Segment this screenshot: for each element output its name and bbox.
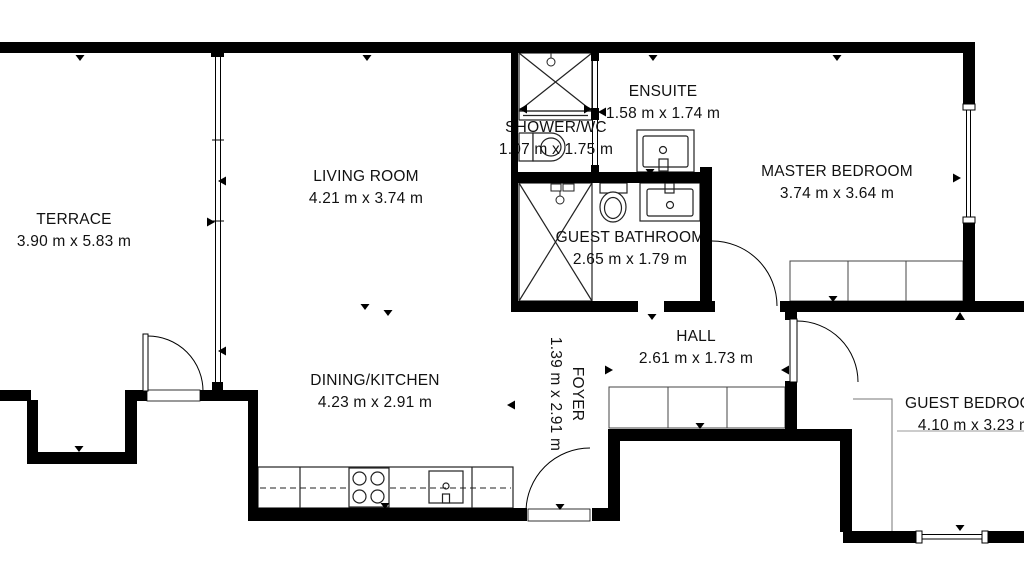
room-name: GUEST BATHROOM [556,227,705,249]
sink-symbol-guest [640,183,700,221]
room-label-dining-kitchen: DINING/KITCHEN 4.23 m x 2.91 m [310,370,439,414]
room-name: DINING/KITCHEN [310,370,439,392]
room-label-ensuite: ENSUITE 1.58 m x 1.74 m [606,81,720,125]
door-guest-bedroom [790,319,858,382]
room-label-terrace: TERRACE 3.90 m x 5.83 m [17,209,131,253]
room-name: MASTER BEDROOM [761,161,913,183]
room-dims: 4.10 m x 3.23 m [905,415,1024,437]
room-label-hall: HALL 2.61 m x 1.73 m [639,326,753,370]
walls-layer [0,0,1024,568]
room-dims: 1.58 m x 1.74 m [606,103,720,125]
hall-sideboard [609,387,785,428]
fixtures-layer [0,0,1024,568]
room-dims: 3.74 m x 3.64 m [761,183,913,205]
room-dims: 4.23 m x 2.91 m [310,392,439,414]
room-name: ENSUITE [606,81,720,103]
room-dims: 1.07 m x 1.75 m [499,139,613,161]
kitchen-counter [258,467,513,508]
room-name: SHOWER/WC [499,117,613,139]
shower-head-icon-guest [551,184,574,204]
room-label-shower-wc: SHOWER/WC 1.07 m x 1.75 m [499,117,613,161]
door-guest-bathroom [638,301,665,312]
room-label-living-room: LIVING ROOM 4.21 m x 3.74 m [309,166,423,210]
room-dims: 2.61 m x 1.73 m [639,348,753,370]
shower-head-icon [534,45,559,66]
door-master-bedroom [712,241,777,306]
room-name: LIVING ROOM [309,166,423,188]
room-dims: 3.90 m x 5.83 m [17,231,131,253]
room-dims: 1.39 m x 2.91 m [544,337,566,451]
door-terrace [143,334,203,401]
sink-symbol-ensuite [637,130,694,172]
room-dims: 4.21 m x 3.74 m [309,188,423,210]
room-name: HALL [639,326,753,348]
room-name: GUEST BEDROOM [905,393,1024,415]
room-label-foyer: FOYER 1.39 m x 2.91 m [544,337,588,451]
room-name: FOYER [566,337,588,451]
room-name: TERRACE [17,209,131,231]
sink-symbol-kitchen [429,471,463,503]
toilet-symbol-guest [600,183,627,222]
window-master [963,104,975,223]
room-dims: 2.65 m x 1.79 m [556,249,705,271]
stove-symbol [349,468,389,507]
room-label-guest-bathroom: GUEST BATHROOM 2.65 m x 1.79 m [556,227,705,271]
room-label-master-bedroom: MASTER BEDROOM 3.74 m x 3.64 m [761,161,913,205]
floor-plan: TERRACE 3.90 m x 5.83 m LIVING ROOM 4.21… [0,0,1024,568]
master-wardrobe [790,261,963,301]
window-guest-bedroom [916,531,988,543]
door-entry [526,448,590,521]
window-terrace-living [212,57,224,382]
shower-symbol [519,53,592,120]
room-label-guest-bedroom: GUEST BEDROOM 4.10 m x 3.23 m [905,393,1024,437]
